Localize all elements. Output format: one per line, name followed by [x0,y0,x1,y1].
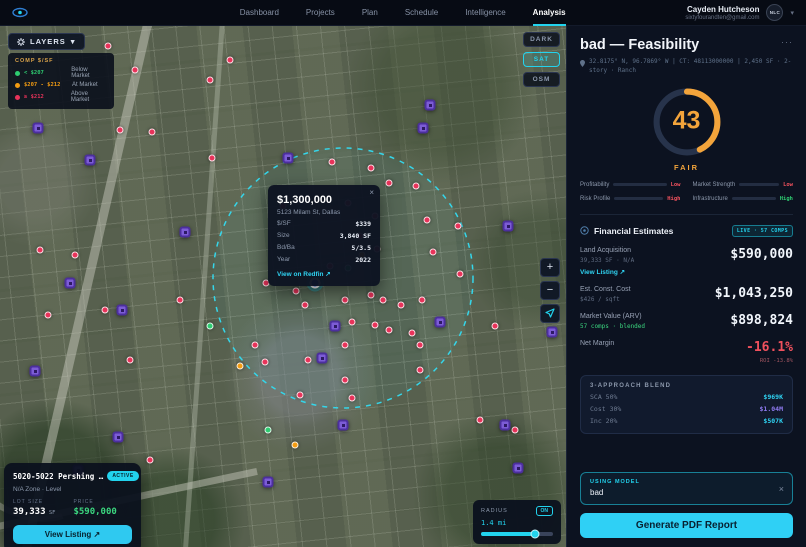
radius-slider-fill [481,532,535,536]
comp-marker-above-market[interactable] [132,67,139,74]
comp-marker-above-market[interactable] [380,297,387,304]
feasibility-score: 43 FAIR [649,84,725,172]
more-options-icon[interactable]: ··· [781,37,793,47]
popup-row-size: Size 3,840 SF [277,232,371,240]
property-card: 5020-5022 Pershing … ACTIVE N/A Zone · L… [4,463,141,547]
metric-infrastructure: Infrastructure High [693,196,794,202]
comp-popup: × $1,300,000 5123 Milam St, Dallas $/SF … [268,185,380,286]
app-logo-icon [12,7,30,19]
navigation-arrow-icon [545,308,555,318]
comp-marker-above-market[interactable] [209,155,216,162]
map-canvas[interactable]: LAYERS ▾ COMP $/SF < $207 Below Market $… [0,26,566,547]
popup-address: 5123 Milam St, Dallas [277,209,371,216]
radius-slider-thumb[interactable] [531,530,540,539]
target-icon [580,226,589,235]
view-on-redfin-link[interactable]: View on Redfin ↗ [277,270,371,278]
comp-marker-above-market[interactable] [297,392,304,399]
layers-button[interactable]: LAYERS ▾ [8,33,85,50]
comp-marker-above-market[interactable] [262,359,269,366]
comp-marker-above-market[interactable] [117,127,124,134]
comp-marker-above-market[interactable] [72,252,79,259]
approach-blend-card: 3-APPROACH BLEND SCA 50% $969K Cost 30% … [580,375,793,434]
live-comps-badge: LIVE · 57 COMPS [732,225,793,237]
legend-item-at-market: $207 - $212 At Market [15,82,107,88]
generate-pdf-report-button[interactable]: Generate PDF Report [580,513,793,538]
parcel-marker[interactable] [263,477,274,488]
comp-marker-above-market[interactable] [342,342,349,349]
parcel-marker[interactable] [180,227,191,238]
comp-marker-above-market[interactable] [512,427,519,434]
legend-item-below-market: < $207 Below Market [15,67,107,79]
chevron-down-icon[interactable]: ▾ [790,9,794,17]
comp-marker-above-market[interactable] [457,271,464,278]
close-icon[interactable]: × [779,484,784,494]
locate-button[interactable] [540,304,560,323]
comp-marker-below-market[interactable] [265,427,272,434]
radius-slider[interactable] [481,532,553,536]
metric-profitability: Profitability Low [580,182,681,188]
comp-marker-above-market[interactable] [455,223,462,230]
parcel-marker[interactable] [30,366,41,377]
user-info: Cayden Hutcheson sixtyfourandten@gmail.c… [685,5,759,21]
comp-marker-above-market[interactable] [305,357,312,364]
parcel-marker[interactable] [283,153,294,164]
metric-grid: Profitability Low Market Strength Low Ri… [580,182,793,202]
comp-marker-above-market[interactable] [207,77,214,84]
popup-row-psf: $/SF $339 [277,220,371,228]
parcel-marker[interactable] [425,100,436,111]
blend-title: 3-APPROACH BLEND [590,383,783,389]
nav-plan[interactable]: Plan [362,0,378,26]
popup-row-bdba: Bd/Ba 5/3.5 [277,244,371,252]
section-title: Financial Estimates [594,226,673,236]
parcel-marker[interactable] [418,123,429,134]
comp-marker-above-market[interactable] [372,322,379,329]
metric-market-strength: Market Strength Low [693,182,794,188]
comp-marker-above-market[interactable] [424,217,431,224]
panel-title: bad — Feasibility [580,37,699,53]
comp-marker-above-market[interactable] [492,323,499,330]
green-dot-icon [15,71,20,76]
using-model-label: USING MODEL [590,479,772,485]
comp-marker-above-market[interactable] [102,307,109,314]
comp-marker-above-market[interactable] [147,457,154,464]
radius-on-toggle[interactable]: ON [536,506,554,516]
construction-cost-row: Est. Const. Cost $426 / sqft $1,043,250 [580,286,793,303]
comp-marker-above-market[interactable] [386,180,393,187]
avatar[interactable]: NLC [766,4,783,21]
nav-dashboard[interactable]: Dashboard [240,0,279,26]
parcel-marker[interactable] [330,321,341,332]
comp-marker-at-market[interactable] [237,363,244,370]
blend-row-inc: Inc 20% $507K [590,417,783,425]
radius-value: 1.4 mi [481,519,553,527]
legend-title: COMP $/SF [15,58,107,64]
net-margin-row: Net Margin -16.1% ROI -13.8% [580,340,793,364]
radius-label: RADIUS [481,508,508,514]
financial-estimates-header: Financial Estimates LIVE · 57 COMPS [580,214,793,237]
comp-marker-above-market[interactable] [45,312,52,319]
comp-marker-above-market[interactable] [302,302,309,309]
comp-marker-above-market[interactable] [342,377,349,384]
comp-marker-above-market[interactable] [419,297,426,304]
comp-marker-above-market[interactable] [105,43,112,50]
parcel-marker[interactable] [33,123,44,134]
metric-risk-profile: Risk Profile High [580,196,681,202]
close-icon[interactable]: × [369,188,374,197]
orange-dot-icon [15,83,20,88]
land-acquisition-row: Land Acquisition 39,333 SF · N/A View Li… [580,247,793,276]
market-value-row: Market Value (ARV) 57 comps · blended $8… [580,313,793,330]
comp-marker-above-market[interactable] [127,357,134,364]
gear-icon [17,38,25,46]
status-badge: ACTIVE [107,471,138,481]
parcel-marker[interactable] [547,327,558,338]
score-rating: FAIR [649,163,725,172]
property-card-header: 5020-5022 Pershing … ACTIVE [13,471,132,481]
comp-marker-above-market[interactable] [329,159,336,166]
comp-marker-above-market[interactable] [342,297,349,304]
nav-intelligence[interactable]: Intelligence [465,0,505,26]
parcel-marker[interactable] [85,155,96,166]
parcel-marker[interactable] [113,432,124,443]
user-menu[interactable]: Cayden Hutcheson sixtyfourandten@gmail.c… [685,4,794,21]
map-controls: + − [540,258,560,323]
score-value: 43 [673,106,701,135]
comp-legend: COMP $/SF < $207 Below Market $207 - $21… [8,53,114,109]
comp-marker-above-market[interactable] [368,292,375,299]
app-root: Dashboard Projects Plan Schedule Intelli… [0,0,806,547]
parcel-marker[interactable] [65,278,76,289]
comp-marker-above-market[interactable] [398,302,405,309]
basemap-dark-button[interactable]: DARK [523,32,560,47]
blend-row-sca: SCA 50% $969K [590,393,783,401]
lot-size-stat: LOT SIZE 39,333 SF [13,499,55,517]
nav-schedule[interactable]: Schedule [405,0,438,26]
property-stats: LOT SIZE 39,333 SF PRICE $590,000 [13,499,132,517]
comp-marker-above-market[interactable] [37,247,44,254]
parcel-marker[interactable] [500,420,511,431]
red-dot-icon [15,95,20,100]
parcel-marker[interactable] [338,420,349,431]
view-listing-link[interactable]: View Listing ↗ [580,268,634,276]
using-model-box: USING MODEL bad × [580,472,793,505]
user-name: Cayden Hutcheson [685,5,759,14]
feasibility-panel: bad — Feasibility ··· 32.8175° N, 96.786… [566,26,806,547]
comp-marker-above-market[interactable] [368,165,375,172]
comp-marker-above-market[interactable] [386,327,393,334]
popup-price: $1,300,000 [277,194,371,206]
top-nav: Dashboard Projects Plan Schedule Intelli… [0,0,806,26]
comp-marker-above-market[interactable] [430,249,437,256]
nav-analysis[interactable]: Analysis [533,0,566,26]
property-zone: N/A Zone · Level [13,486,132,493]
basemap-osm-button[interactable]: OSM [523,72,560,87]
model-name: bad [590,488,772,497]
parcel-marker[interactable] [503,221,514,232]
comp-marker-above-market[interactable] [413,183,420,190]
comp-marker-above-market[interactable] [252,342,259,349]
chevron-down-icon: ▾ [71,37,76,46]
layers-button-label: LAYERS [30,37,66,46]
zoom-in-button[interactable]: + [540,258,560,277]
price-stat: PRICE $590,000 [73,499,116,517]
comp-marker-above-market[interactable] [417,367,424,374]
user-email: sixtyfourandten@gmail.com [685,15,759,21]
comp-marker-above-market[interactable] [149,129,156,136]
zoom-out-button[interactable]: − [540,281,560,300]
comp-marker-above-market[interactable] [477,417,484,424]
basemap-toggle-group: DARK SAT OSM [523,32,560,87]
parcel-marker[interactable] [435,317,446,328]
comp-marker-above-market[interactable] [177,297,184,304]
comp-marker-below-market[interactable] [207,323,214,330]
main-nav: Dashboard Projects Plan Schedule Intelli… [240,0,566,26]
comp-marker-above-market[interactable] [349,395,356,402]
comp-marker-above-market[interactable] [409,330,416,337]
parcel-marker[interactable] [117,305,128,316]
comp-marker-above-market[interactable] [417,342,424,349]
parcel-marker[interactable] [317,353,328,364]
basemap-sat-button[interactable]: SAT [523,52,560,67]
radius-control: RADIUS ON 1.4 mi [473,500,561,544]
comp-marker-above-market[interactable] [227,57,234,64]
blend-row-cost: Cost 30% $1.04M [590,405,783,413]
nav-projects[interactable]: Projects [306,0,335,26]
comp-marker-at-market[interactable] [292,442,299,449]
legend-item-above-market: ≥ $212 Above Market [15,91,107,103]
popup-row-year: Year 2022 [277,256,371,264]
property-title: 5020-5022 Pershing … [13,472,103,481]
view-listing-button[interactable]: View Listing ↗ [13,525,132,544]
map-pin-icon [580,60,585,67]
comp-marker-above-market[interactable] [293,288,300,295]
parcel-marker[interactable] [513,463,524,474]
comp-marker-above-market[interactable] [349,319,356,326]
property-coords: 32.8175° N, 96.7869° W | CT: 48113000000… [580,57,793,76]
